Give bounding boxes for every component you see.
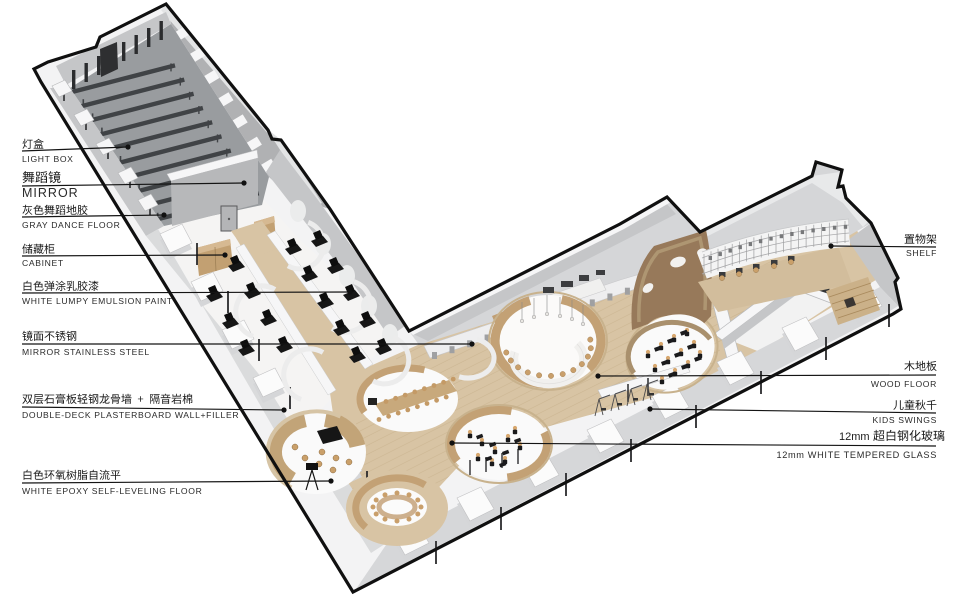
svg-text:GRAY DANCE FLOOR: GRAY DANCE FLOOR	[22, 220, 120, 230]
svg-text:WOOD FLOOR: WOOD FLOOR	[871, 379, 937, 389]
svg-text:SHELF: SHELF	[906, 248, 937, 258]
svg-text:MIRROR: MIRROR	[22, 186, 79, 200]
svg-text:CABINET: CABINET	[22, 258, 64, 268]
svg-text:12mm WHITE TEMPERED GLASS: 12mm WHITE TEMPERED GLASS	[776, 450, 937, 460]
svg-text:KIDS SWINGS: KIDS SWINGS	[873, 415, 937, 425]
svg-text:MIRROR STAINLESS STEEL: MIRROR STAINLESS STEEL	[22, 347, 150, 357]
svg-text:WHITE EPOXY SELF-LEVELING FLOO: WHITE EPOXY SELF-LEVELING FLOOR	[22, 486, 202, 496]
svg-text:LIGHT BOX: LIGHT BOX	[22, 154, 74, 164]
svg-text:WHITE LUMPY EMULSION PAINT: WHITE LUMPY EMULSION PAINT	[22, 296, 173, 306]
svg-text:12mm: 12mm	[839, 431, 870, 443]
svg-text:DOUBLE-DECK PLASTERBOARD WALL+: DOUBLE-DECK PLASTERBOARD WALL+FILLER	[22, 410, 239, 420]
